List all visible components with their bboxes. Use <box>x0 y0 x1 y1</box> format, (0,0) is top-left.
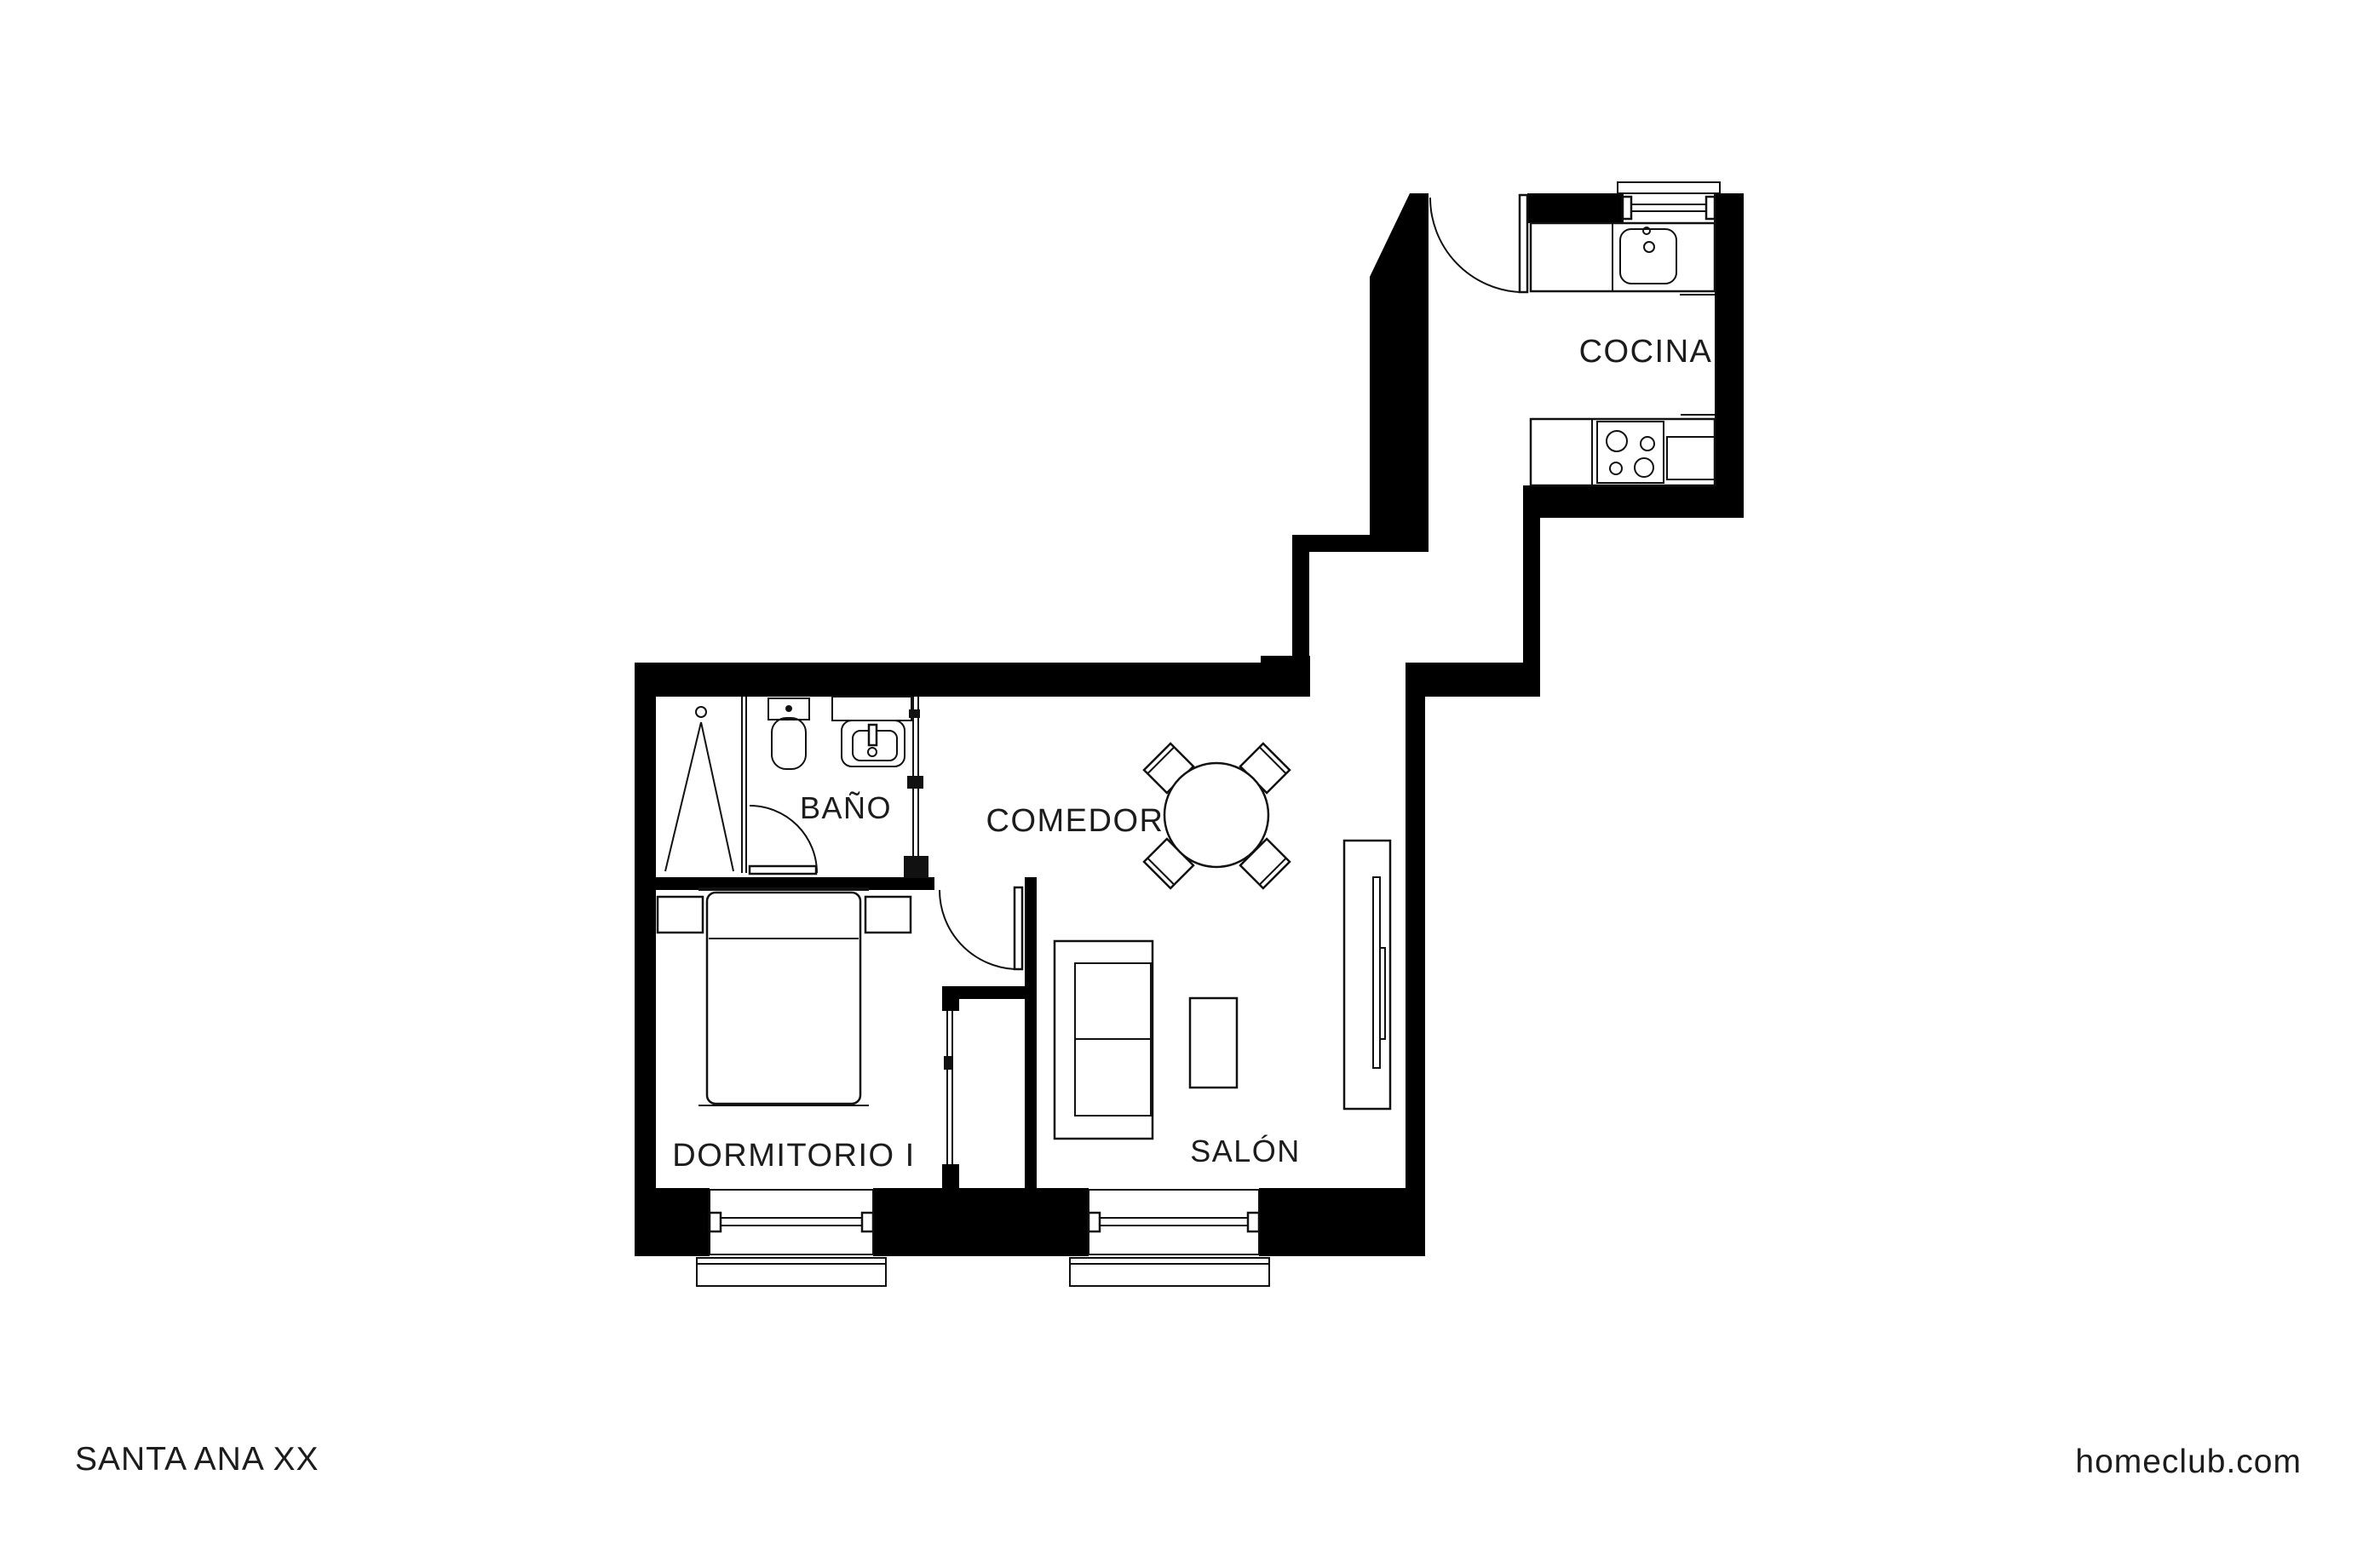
chair-back <box>1260 858 1286 885</box>
window-end-frame <box>1623 197 1631 219</box>
windows <box>697 182 1720 1286</box>
toilet-bowl <box>772 718 806 769</box>
wall-hall-left <box>1292 549 1309 660</box>
nightstand-icon <box>658 897 703 933</box>
dining-set <box>1144 743 1290 888</box>
kitchen-sink-counter <box>1531 223 1715 295</box>
sliding-door-handle <box>944 1056 953 1070</box>
stove-burner <box>1610 462 1622 474</box>
tv-screen <box>1373 877 1380 1068</box>
washbasin-icon <box>832 697 911 766</box>
kitchen-sink-icon <box>1620 229 1676 284</box>
wall-salon-right <box>1406 663 1425 1256</box>
footer: SANTA ANA XX homeclub.com <box>75 1441 2302 1480</box>
wall-bottom-middle <box>873 1188 1089 1256</box>
floorplan-canvas: COCINA BAÑO COMEDOR DORMITORIO I SALÓN S… <box>0 0 2380 1550</box>
shower-line <box>665 722 701 871</box>
sliding-door-cap <box>909 709 920 718</box>
stove-burner <box>1635 458 1653 477</box>
window-dormitorio <box>697 1188 886 1286</box>
wall-hall-top <box>1292 535 1370 552</box>
tv-cabinet <box>1344 841 1390 1109</box>
window-end-frame <box>1706 197 1715 219</box>
door-swing-arc <box>1430 198 1520 292</box>
label-cocina: COCINA <box>1579 334 1713 370</box>
washbasin-tap <box>869 725 877 745</box>
shower-icon <box>665 697 746 873</box>
window-opening <box>710 1188 873 1256</box>
vanity-counter <box>832 697 911 720</box>
wall-bottom-right <box>1259 1188 1425 1256</box>
entrance-door-swing-icon <box>1430 195 1527 292</box>
nightstand-icon <box>865 897 911 933</box>
chair-back <box>1147 858 1174 885</box>
wall-closet-stub-bottom <box>942 1164 959 1190</box>
sliding-door-post <box>904 856 928 878</box>
bathroom-sliding-door-icon <box>904 697 928 878</box>
sofa-icon <box>1055 941 1153 1139</box>
toilet-flush-button <box>785 705 792 712</box>
window-end-frame <box>710 1213 721 1231</box>
wall-closet-top <box>946 986 1037 999</box>
closet-sliding-door-icon <box>944 1011 953 1164</box>
wall-kitchen-right <box>1715 193 1744 518</box>
walls <box>635 193 1744 1256</box>
window-end-frame <box>1089 1213 1100 1231</box>
dormitorio-door-swing-icon <box>940 887 1022 969</box>
wall-kitchen-top-right <box>1715 193 1744 223</box>
oven-icon <box>1667 437 1715 479</box>
floorplan-page: COCINA BAÑO COMEDOR DORMITORIO I SALÓN S… <box>0 0 2380 1550</box>
door-leaf <box>1520 195 1527 292</box>
shower-line <box>701 722 733 871</box>
window-sill-bay <box>1070 1258 1269 1286</box>
kitchen-counter-bottom <box>1531 419 1715 485</box>
window-opening <box>1089 1188 1259 1256</box>
washbasin-drain <box>868 748 877 756</box>
stove-icon <box>1597 422 1664 483</box>
coffee-table-icon <box>1190 998 1237 1088</box>
label-salon: SALÓN <box>1190 1134 1301 1168</box>
window-sill-bay <box>697 1258 886 1286</box>
sink-drain <box>1644 242 1654 252</box>
window-salon <box>1070 1188 1269 1286</box>
wall-left-exterior <box>635 663 656 1256</box>
wall-salon-left-bar <box>1025 877 1037 1190</box>
wall-closet-stub-top <box>942 986 959 1011</box>
bedroom-furniture <box>658 889 911 1105</box>
bathroom-fixtures <box>665 697 911 873</box>
door-leaf <box>1015 887 1022 969</box>
tv-unit-icon <box>1344 841 1390 1109</box>
double-bed-icon <box>707 893 860 1104</box>
chair-back <box>1147 747 1174 773</box>
wall-top-main <box>635 663 1310 697</box>
window-end-frame <box>862 1213 873 1231</box>
window-cocina <box>1618 182 1720 223</box>
toilet-icon <box>768 698 809 769</box>
room-labels: COCINA BAÑO COMEDOR DORMITORIO I SALÓN <box>672 334 1712 1174</box>
shower-head <box>696 707 706 717</box>
door-leaf <box>750 866 816 874</box>
wall-top-end-block <box>1261 656 1310 697</box>
footer-project-name: SANTA ANA XX <box>75 1441 319 1478</box>
footer-website: homeclub.com <box>2075 1444 2302 1480</box>
stove-burner <box>1607 431 1627 451</box>
label-bano: BAÑO <box>800 790 892 825</box>
chair-back <box>1260 747 1286 773</box>
label-comedor: COMEDOR <box>986 803 1164 839</box>
salon-furniture <box>1055 841 1390 1139</box>
tv-bracket <box>1380 948 1385 1039</box>
wall-kitchen-top-left <box>1527 193 1623 223</box>
stove-burner <box>1641 437 1654 451</box>
wall-bottom-left <box>635 1188 710 1256</box>
wall-corridor-bottom <box>1425 663 1540 697</box>
wall-kitchen-bottom <box>1523 485 1744 518</box>
door-swing-arc <box>940 890 1015 969</box>
sliding-door-handle <box>907 776 923 789</box>
round-table-icon <box>1164 763 1268 867</box>
wall-column-diagonal <box>1370 193 1429 552</box>
window-end-frame <box>1248 1213 1259 1231</box>
kitchen-stove-counter <box>1531 415 1715 485</box>
label-dormitorio: DORMITORIO I <box>672 1138 915 1174</box>
